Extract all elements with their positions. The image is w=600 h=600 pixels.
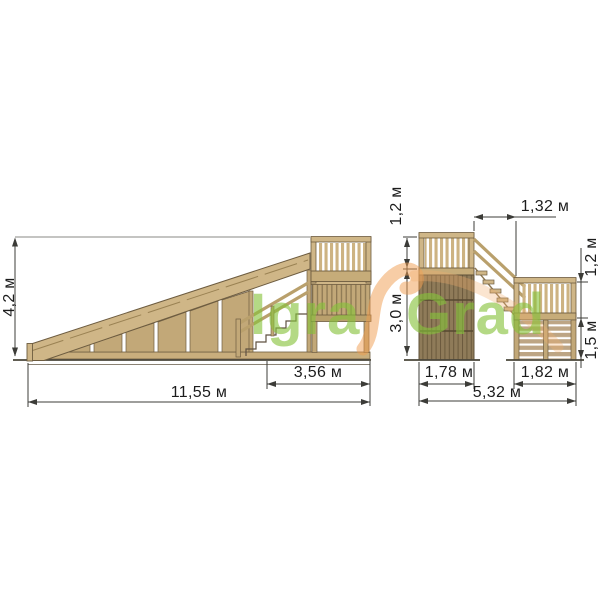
side-top-railing [311, 237, 371, 284]
dimension-label-stair-span: 1,32 м [510, 198, 580, 216]
stair-newel-post [236, 319, 241, 357]
dimension-label-tower-platform-height: 3,0 м [388, 278, 406, 348]
dimension-label-landing-rail-height: 1,2 м [583, 222, 600, 292]
dimension-label-height: 4,2 м [1, 262, 19, 332]
top-railing-balusters [317, 243, 367, 271]
dimension-label-total-width: 5,32 м [462, 384, 532, 402]
top-platform-floor [311, 271, 371, 282]
ramp-end-board [27, 344, 33, 362]
drawing-canvas: Igra Grad 4,2 м 3,56 м 11,55 м 1,2 м 3,0… [0, 0, 600, 600]
watermark-igra: Igra [250, 286, 360, 344]
tower-railing-balusters [425, 238, 469, 269]
landing-base-post-right [571, 320, 576, 360]
dimension-label-tower-width: 1,78 м [414, 364, 484, 382]
dimension-label-total-length: 11,55 м [164, 384, 234, 402]
dimension-label-tower-rail-height: 1,2 м [388, 171, 406, 241]
ramp-wall-panels [70, 291, 250, 352]
dimension-label-stair-section-width: 3,56 м [283, 364, 353, 382]
watermark-grad: Grad [406, 286, 545, 344]
dimension-label-landing-floor-height: 1,5 м [583, 305, 600, 375]
dimension-label-landing-width: 1,82 м [510, 364, 580, 382]
tower-handrail [419, 233, 474, 239]
side-base-beam [28, 352, 370, 359]
top-railing-handrail [311, 237, 371, 243]
